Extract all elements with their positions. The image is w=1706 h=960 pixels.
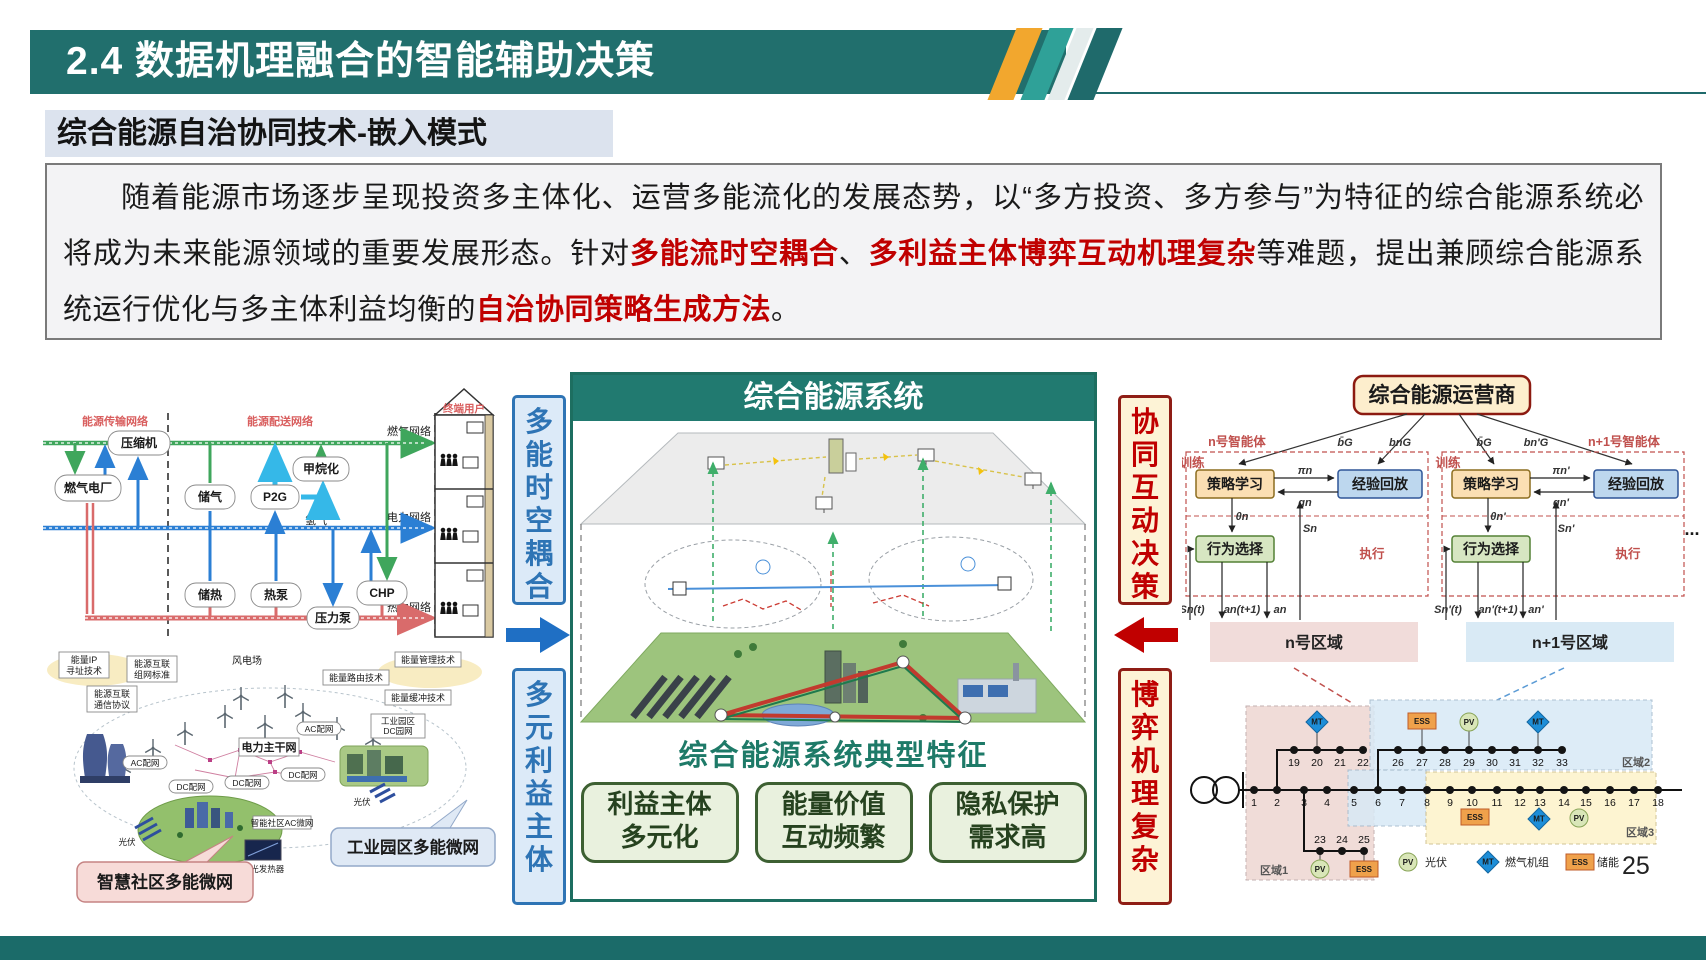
methanation-box: 甲烷化 bbox=[303, 461, 339, 476]
bus-node bbox=[1654, 786, 1662, 794]
bus-node-number: 9 bbox=[1447, 797, 1453, 809]
chp-box: CHP bbox=[369, 586, 394, 600]
callout-industry: 工业园区多能微网 bbox=[331, 800, 495, 866]
zone1-label: 区域1 bbox=[1260, 863, 1288, 877]
pv-label-right: 光伏 bbox=[353, 797, 371, 807]
bus-node-number: 7 bbox=[1399, 797, 1405, 809]
svg-text:PV: PV bbox=[1464, 718, 1475, 727]
replay-box: 经验回放 bbox=[1352, 476, 1409, 492]
bus-node-number: 10 bbox=[1466, 797, 1478, 809]
agent-n1: b̄G bn'G n+1号智能体 训练 策略学习 经验回放 πn' gn' θn… bbox=[1434, 434, 1684, 662]
bus-node bbox=[1534, 746, 1542, 754]
agents-ellipsis: ... bbox=[1684, 519, 1699, 539]
csp-collector bbox=[245, 840, 281, 860]
bus-node bbox=[1488, 746, 1496, 754]
bus-node-number: 33 bbox=[1556, 757, 1568, 769]
bus-node-number: 31 bbox=[1509, 757, 1521, 769]
label-collaborative-decision: 协同互动决策 bbox=[1118, 395, 1172, 605]
section-subtitle: 综合能源自治协同技术-嵌入模式 bbox=[45, 110, 613, 157]
bus-node-number: 1 bbox=[1251, 797, 1257, 809]
bus-node-number: 18 bbox=[1652, 797, 1664, 809]
connector-region-n1 bbox=[1497, 668, 1564, 700]
bus-node-number: 30 bbox=[1486, 757, 1498, 769]
bus-node bbox=[1423, 786, 1431, 794]
st-label: Sn(t) bbox=[1182, 604, 1205, 616]
end-user-building: 终端用户 bbox=[435, 389, 493, 637]
footer-bar bbox=[0, 936, 1706, 960]
bus-node-number: 6 bbox=[1375, 797, 1381, 809]
bus-node bbox=[1338, 847, 1346, 855]
marl-bus-diagram: 综合能源运营商 n号智能体 b̄G bnG 训练 策略学习 经验回放 πn gn… bbox=[1182, 370, 1702, 905]
bus-node-number: 15 bbox=[1580, 797, 1592, 809]
power-net-label: 电力网络 bbox=[387, 510, 431, 524]
bus-node bbox=[1516, 786, 1524, 794]
end-user-label: 终端用户 bbox=[443, 402, 485, 415]
bus-node bbox=[1290, 746, 1298, 754]
energy-network-diagram: 能源传输网络 能源配送网络 燃气网络 电力网络 热力网络 氢气 bbox=[35, 375, 497, 647]
bus-node bbox=[1582, 786, 1590, 794]
tech-label: 能量路由技术 bbox=[329, 672, 383, 683]
legend-label: 燃气机组 bbox=[1505, 855, 1549, 869]
tech-label: 能源互联 bbox=[134, 658, 170, 669]
summary-paragraph: 随着能源市场逐步呈现投资多主体化、运营多能流化的发展态势，以“多方投资、多方参与… bbox=[63, 170, 1644, 338]
page-number: 25 bbox=[1622, 852, 1650, 881]
bus-node-number: 5 bbox=[1351, 797, 1357, 809]
label-text: 协同互动决策 bbox=[1129, 405, 1161, 602]
agent-n: n号智能体 b̄G bnG 训练 策略学习 经验回放 πn gn θn 行为选择… bbox=[1182, 434, 1428, 662]
region-n1-label: n+1号区域 bbox=[1532, 633, 1608, 652]
tech-label: 能源互联 bbox=[94, 688, 130, 699]
a-label: an bbox=[1274, 604, 1287, 616]
summary-text-box: 随着能源市场逐步呈现投资多主体化、运营多能流化的发展态势，以“多方投资、多方参与… bbox=[45, 163, 1662, 340]
bus-node bbox=[1336, 746, 1344, 754]
ies-caption: 综合能源系统典型特征 bbox=[573, 732, 1094, 774]
label-text: 多元利益主体 bbox=[523, 678, 555, 902]
highlight-text: 多能流时空耦合 bbox=[630, 238, 839, 270]
bus-node-number: 21 bbox=[1334, 757, 1346, 769]
bus-node bbox=[1300, 786, 1308, 794]
park-grid-label: 工业园区 bbox=[381, 716, 416, 726]
at-label: an'(t+1) bbox=[1479, 604, 1518, 616]
grid-label: DC配网 bbox=[288, 770, 317, 780]
bid-label: bn'G bbox=[1524, 437, 1549, 449]
action-box: 行为选择 bbox=[1206, 541, 1264, 557]
bus-node-number: 2 bbox=[1274, 797, 1280, 809]
bus-node bbox=[1394, 746, 1402, 754]
bus-node-number: 28 bbox=[1439, 757, 1451, 769]
svg-text:ESS: ESS bbox=[1467, 813, 1484, 822]
bus-node bbox=[1493, 786, 1501, 794]
connector-region-n bbox=[1294, 668, 1352, 703]
train-label: 训练 bbox=[1182, 455, 1205, 470]
pi-label: πn bbox=[1298, 465, 1313, 477]
bus-node bbox=[1350, 786, 1358, 794]
theta-label: θn bbox=[1236, 511, 1249, 523]
bus-node-number: 11 bbox=[1492, 797, 1503, 809]
label-game-mechanism: 博弈机理复杂 bbox=[1118, 668, 1172, 905]
community-grid-label: 智能社区AC微网 bbox=[251, 818, 314, 828]
bus-node-number: 17 bbox=[1628, 797, 1640, 809]
heat-storage-box: 储热 bbox=[198, 587, 222, 602]
feature-stakeholders: 利益主体 多元化 bbox=[581, 782, 739, 863]
tech-label: 能量IP bbox=[71, 654, 98, 665]
bus-node bbox=[1536, 786, 1544, 794]
p2g-box: P2G bbox=[263, 490, 287, 504]
bus-node-number: 3 bbox=[1301, 797, 1307, 809]
ies-panel: 综合能源系统 bbox=[570, 372, 1097, 902]
agent-name: n+1号智能体 bbox=[1588, 434, 1660, 449]
tech-label: 寻址技术 bbox=[66, 665, 102, 676]
bus-node bbox=[1630, 786, 1638, 794]
region-n-label: n号区域 bbox=[1285, 633, 1343, 652]
highlight-text: 多利益主体博弈互动机理复杂 bbox=[869, 238, 1257, 270]
network-layer bbox=[645, 537, 1033, 628]
bus-node bbox=[1560, 786, 1568, 794]
tech-label: 能量管理技术 bbox=[401, 654, 455, 665]
callout-industry-label: 工业园区多能微网 bbox=[347, 837, 479, 857]
policy-box: 策略学习 bbox=[1462, 476, 1519, 492]
grid-label: AC配网 bbox=[131, 758, 160, 768]
bus-node-number: 19 bbox=[1288, 757, 1300, 769]
pi-label: πn' bbox=[1552, 465, 1570, 477]
svg-text:ESS: ESS bbox=[1356, 865, 1373, 874]
bus-node-number: 20 bbox=[1311, 757, 1323, 769]
svg-text:MT: MT bbox=[1533, 815, 1545, 824]
legend-label: 光伏 bbox=[1425, 855, 1447, 869]
bus-node-number: 27 bbox=[1416, 757, 1428, 769]
park-grid-label: DC园网 bbox=[383, 726, 412, 736]
train-label: 训练 bbox=[1435, 455, 1461, 470]
bus-node bbox=[1316, 847, 1324, 855]
bus-node-number: 24 bbox=[1336, 834, 1348, 846]
agent-name: n号智能体 bbox=[1208, 434, 1266, 449]
feature-row: 利益主体 多元化 能量价值 互动频繁 隐私保护 需求高 bbox=[573, 782, 1094, 863]
energy-internet-picture: 光伏 光伏 聚光发热器 能量IP 寻址技术 能源互联 组网标准 能源互联 通信协… bbox=[35, 650, 497, 906]
bid-label: b̄G bbox=[1476, 437, 1492, 449]
bus-node-number: 14 bbox=[1558, 797, 1570, 809]
bus-legend: PV光伏MT燃气机组ESS储能 bbox=[1399, 851, 1619, 873]
grid-label: DC配网 bbox=[176, 782, 205, 792]
bus-node bbox=[1606, 786, 1614, 794]
ies-panel-title: 综合能源系统 bbox=[573, 375, 1094, 421]
bid-label: b̄G bbox=[1337, 437, 1353, 449]
bus-node bbox=[1418, 746, 1426, 754]
svg-text:ESS: ESS bbox=[1414, 717, 1431, 726]
power-plant bbox=[80, 734, 130, 783]
bus-node bbox=[1398, 786, 1406, 794]
bus-node-number: 12 bbox=[1514, 797, 1526, 809]
feature-privacy: 隐私保护 需求高 bbox=[929, 782, 1087, 863]
decor-header-line bbox=[1096, 92, 1706, 94]
at-label: an(t+1) bbox=[1224, 604, 1261, 616]
distribution-net-label: 能源配送网络 bbox=[247, 414, 313, 428]
pressure-pump-box: 压力泵 bbox=[315, 610, 351, 625]
bus-node-number: 26 bbox=[1392, 757, 1404, 769]
bus-node-number: 13 bbox=[1534, 797, 1546, 809]
label-text: 博弈机理复杂 bbox=[1129, 678, 1161, 902]
body-text: 、 bbox=[839, 238, 869, 270]
bus-node bbox=[1250, 786, 1258, 794]
bus-node bbox=[1374, 786, 1382, 794]
label-multi-stakeholder: 多元利益主体 bbox=[512, 668, 566, 905]
pv-panels-right bbox=[370, 784, 395, 802]
bus-node-number: 16 bbox=[1604, 797, 1616, 809]
heat-pump-box: 热泵 bbox=[264, 587, 288, 602]
blue-right-arrow bbox=[506, 612, 572, 658]
page-title: 2.4 数据机理融合的智能辅助决策 bbox=[66, 30, 655, 94]
bus-node bbox=[1313, 746, 1321, 754]
bus-node bbox=[1360, 847, 1368, 855]
svg-text:PV: PV bbox=[1574, 814, 1585, 823]
feature-energy-value: 能量价值 互动频繁 bbox=[755, 782, 913, 863]
body-text: 。 bbox=[771, 294, 801, 326]
tech-label: 能量缓冲技术 bbox=[391, 692, 445, 703]
bus-node bbox=[1511, 746, 1519, 754]
g-label: gn' bbox=[1552, 497, 1569, 509]
bid-label: bnG bbox=[1389, 437, 1411, 449]
exec-label: 执行 bbox=[1359, 546, 1385, 561]
bus-node-number: 25 bbox=[1358, 834, 1370, 846]
st-label: Sn'(t) bbox=[1434, 604, 1462, 616]
grid-labels: AC配网 DC配网 DC配网 DC配网 AC配网 bbox=[123, 722, 341, 793]
bus-node-number: 22 bbox=[1357, 757, 1369, 769]
bus-node-number: 32 bbox=[1532, 757, 1544, 769]
grid-label: AC配网 bbox=[305, 724, 334, 734]
theta-label: θn' bbox=[1490, 511, 1506, 523]
replay-box: 经验回放 bbox=[1608, 476, 1665, 492]
pv-label-left: 光伏 bbox=[118, 837, 136, 847]
bus-node-number: 8 bbox=[1424, 797, 1430, 809]
highlight-text: 自治协同策略生成方法 bbox=[476, 294, 771, 326]
a-label: an' bbox=[1528, 604, 1544, 616]
zone3-label: 区域3 bbox=[1626, 825, 1654, 839]
svg-text:ESS: ESS bbox=[1572, 858, 1589, 867]
tech-label: 通信协议 bbox=[94, 699, 130, 710]
grid-label: DC配网 bbox=[232, 778, 261, 788]
red-left-arrow bbox=[1112, 612, 1178, 658]
legend-label: 储能 bbox=[1597, 855, 1619, 869]
gas-storage-box: 储气 bbox=[198, 489, 222, 504]
s-label: Sn bbox=[1303, 523, 1317, 535]
bus-node-number: 29 bbox=[1463, 757, 1475, 769]
label-multi-energy-coupling: 多能时空耦合 bbox=[512, 395, 566, 605]
exec-label: 执行 bbox=[1615, 546, 1641, 561]
policy-box: 策略学习 bbox=[1206, 476, 1263, 492]
gas-net-label: 燃气网络 bbox=[387, 424, 431, 438]
bus-node bbox=[1558, 746, 1566, 754]
hydrogen-label: 氢气 bbox=[305, 513, 327, 527]
svg-text:MT: MT bbox=[1311, 718, 1323, 727]
compressor-box: 压缩机 bbox=[121, 435, 157, 450]
gas-plant-box: 燃气电厂 bbox=[64, 480, 112, 495]
bus-node bbox=[1446, 786, 1454, 794]
bus-node bbox=[1465, 746, 1473, 754]
bus-node bbox=[1441, 746, 1449, 754]
zone2-label: 区域2 bbox=[1622, 755, 1650, 769]
operator-label: 综合能源运营商 bbox=[1369, 383, 1516, 407]
action-box: 行为选择 bbox=[1462, 541, 1520, 557]
industry-park-picture bbox=[340, 746, 428, 786]
label-text: 多能时空耦合 bbox=[523, 405, 555, 602]
backbone-label: 电力主干网 bbox=[242, 740, 297, 754]
bus-node bbox=[1468, 786, 1476, 794]
callout-community-label: 智慧社区多能微网 bbox=[97, 872, 233, 892]
park-layer bbox=[581, 633, 1085, 726]
bus-node bbox=[1323, 786, 1331, 794]
transmission-net-label: 能源传输网络 bbox=[82, 414, 148, 428]
ies-3d-scene bbox=[573, 421, 1092, 727]
wind-farm-label: 风电场 bbox=[232, 654, 262, 667]
svg-text:PV: PV bbox=[1403, 858, 1414, 867]
bus-node bbox=[1359, 746, 1367, 754]
tech-label: 组网标准 bbox=[134, 669, 170, 680]
svg-text:PV: PV bbox=[1315, 865, 1326, 874]
bus-node-number: 23 bbox=[1314, 834, 1326, 846]
bus-node-number: 4 bbox=[1324, 797, 1330, 809]
s-label: Sn' bbox=[1558, 523, 1575, 535]
svg-text:MT: MT bbox=[1532, 718, 1544, 727]
svg-text:MT: MT bbox=[1482, 858, 1494, 867]
bus-node bbox=[1273, 786, 1281, 794]
